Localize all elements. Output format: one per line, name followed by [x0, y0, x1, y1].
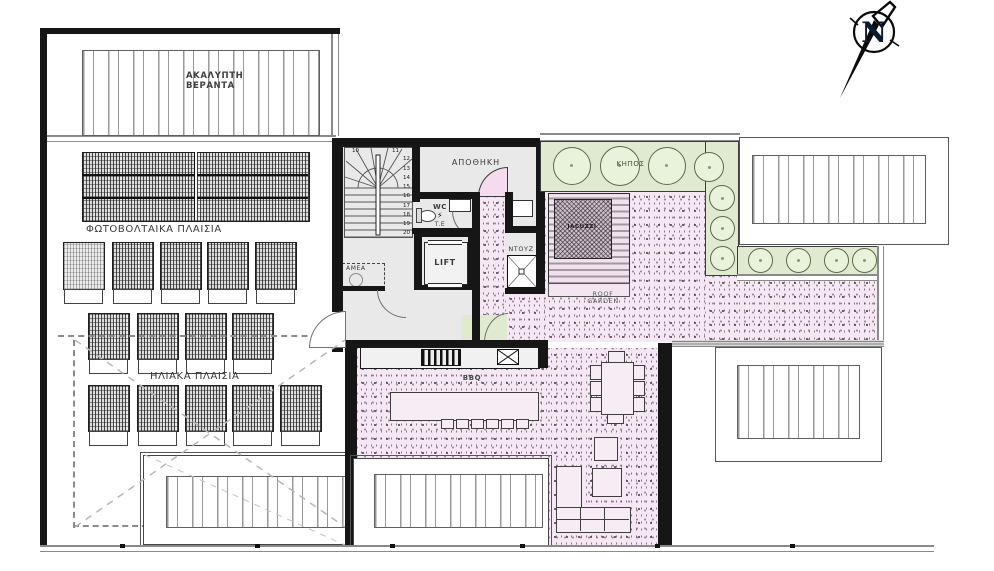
north-label: N: [861, 16, 887, 49]
roof-floor-plan: ΑΚΑΛΥΠΤΗ ΒΕΡΑΝΤΑ ΦΩΤΟΒΟΛΤΑΙΚΑ ΠΛΑΙΣΙΑ ΗΛ…: [0, 0, 994, 571]
north-arrow-icon: N: [828, 0, 910, 102]
